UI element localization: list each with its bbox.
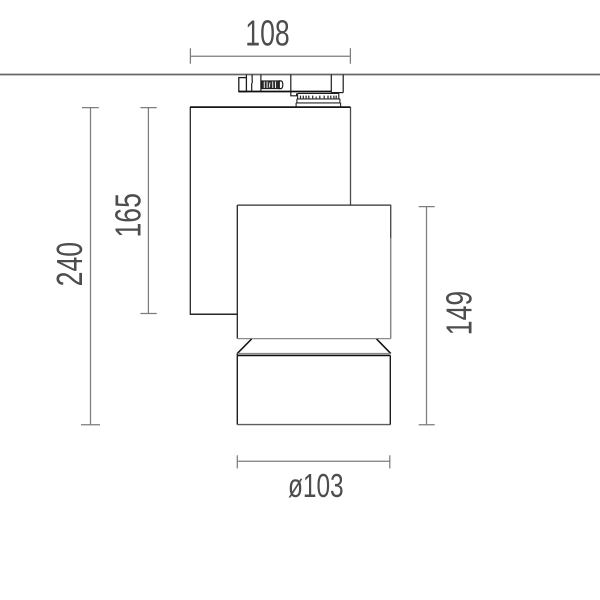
svg-text:240: 240: [49, 242, 90, 286]
svg-text:165: 165: [107, 193, 148, 237]
svg-text:149: 149: [438, 291, 479, 335]
svg-text:ø103: ø103: [288, 467, 344, 505]
svg-text:108: 108: [245, 12, 289, 53]
